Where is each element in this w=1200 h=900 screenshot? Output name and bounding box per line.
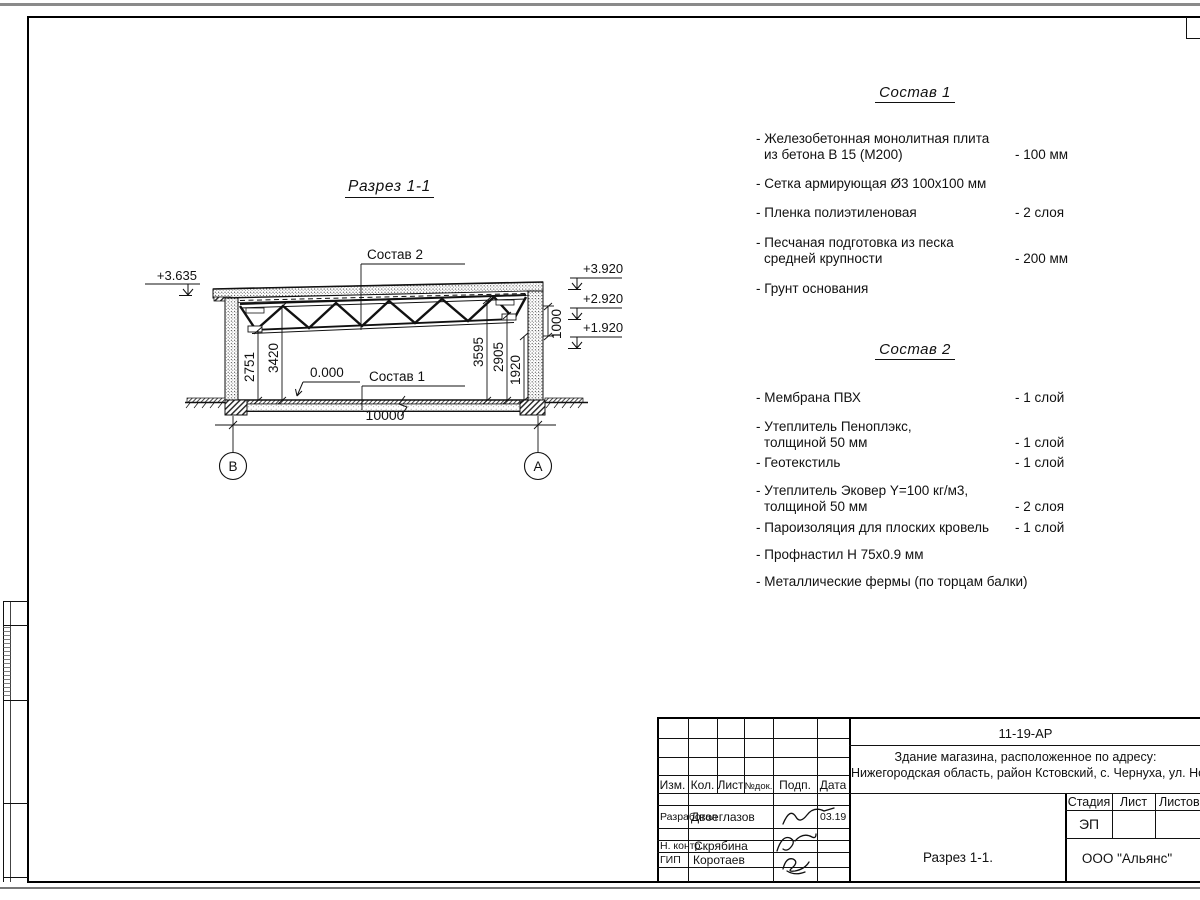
tb-sheet-label: Лист (1112, 795, 1155, 809)
tb-doc-number: 11-19-АР (851, 726, 1200, 741)
elevation-marks-right (568, 278, 622, 349)
drawing-sheet: Разрез 1-1 (0, 0, 1200, 900)
list-item: - Сетка армирующая Ø3 100х100 мм (756, 176, 1080, 192)
tb-address-line2: Нижегородская область, район Кстовский, … (851, 766, 1200, 780)
elevation-right-value-3: +1.920 (583, 320, 623, 335)
elevation-mark-left (145, 284, 200, 296)
list-item: - Пароизоляция для плоских кровель - 1 с… (756, 520, 1080, 536)
dim-2905: 2905 (491, 342, 506, 372)
tb-sheets-label: Листов (1159, 795, 1200, 809)
list-item: - Геотекстиль - 1 слой (756, 455, 1080, 471)
tb-date-0319: 03.19 (820, 811, 846, 823)
tb-header-list: Лист (717, 778, 744, 792)
tb-name-skryabina: Скрябина (694, 839, 748, 853)
list-item: - Песчаная подготовка из песка средней к… (756, 235, 1080, 266)
tb-header-data: Дата (817, 778, 849, 792)
list-item: - Профнастил Н 75х0.9 мм (756, 547, 1080, 563)
sostav2-list: Состав 2 - Мембрана ПВХ - 1 слой - Утепл… (750, 341, 1080, 601)
dim-1000: 1000 (549, 309, 564, 339)
foundation-right (520, 400, 545, 415)
tb-header-kol: Кол. (688, 778, 717, 792)
tb-stage-label: Стадия (1066, 795, 1112, 809)
list-item: - Железобетонная монолитная плита из бет… (756, 131, 1080, 162)
foundation-left (225, 400, 247, 415)
list-item: - Грунт основания (756, 281, 1080, 297)
elevation-right-value-2: +2.920 (583, 291, 623, 306)
tb-header-izm: Изм. (657, 778, 688, 792)
list-item: - Металлические фермы (по торцам балки) (756, 574, 1080, 590)
wall-left (225, 298, 238, 400)
elevation-left-value: +3.635 (157, 268, 197, 283)
dim-span-10000: 10000 (366, 407, 405, 423)
label-zero-level: 0.000 (310, 365, 344, 380)
signature-nkontr (777, 834, 816, 851)
list-item: - Мембрана ПВХ - 1 слой (756, 390, 1080, 406)
dim-1920: 1920 (508, 355, 523, 385)
sostav1-title: Состав 1 (875, 84, 955, 103)
dim-3595: 3595 (471, 337, 486, 367)
label-sostav1: Состав 1 (369, 369, 425, 384)
label-sostav2: Состав 2 (367, 247, 423, 262)
tb-stage-value: ЭП (1066, 816, 1112, 832)
tb-drawing-name: Разрез 1-1. (851, 850, 1065, 865)
top-right-doc-box (1186, 17, 1200, 39)
axis-letter-left: В (228, 459, 237, 474)
dim-2751: 2751 (242, 352, 257, 382)
wall-right (528, 291, 543, 400)
sostav2-title: Состав 2 (875, 341, 955, 360)
tb-company: ООО "Альянс" (1067, 851, 1187, 866)
axis-letter-right: А (533, 459, 542, 474)
building-section (185, 282, 588, 416)
sostav1-list: Состав 1 - Железобетонная монолитная пли… (750, 84, 1080, 304)
elevation-right-value-1: +3.920 (583, 261, 623, 276)
list-item: - Пленка полиэтиленовая - 2 слоя (756, 205, 1080, 221)
tb-header-ndok: №док. (744, 781, 773, 792)
tb-header-podp: Подп. (773, 778, 817, 792)
list-item: - Утеплитель Эковер Y=100 кг/м3, толщино… (756, 483, 1080, 514)
tb-role-gip: ГИП (660, 854, 681, 866)
list-item: - Утеплитель Пеноплэкс, толщиной 50 мм -… (756, 419, 1080, 450)
tb-name-dvoeglazov: Двоеглазов (691, 810, 755, 824)
tb-address-line1: Здание магазина, расположенное по адресу… (851, 750, 1200, 764)
dim-3420: 3420 (266, 343, 281, 373)
tb-name-korotaev: Коротаев (693, 853, 745, 867)
